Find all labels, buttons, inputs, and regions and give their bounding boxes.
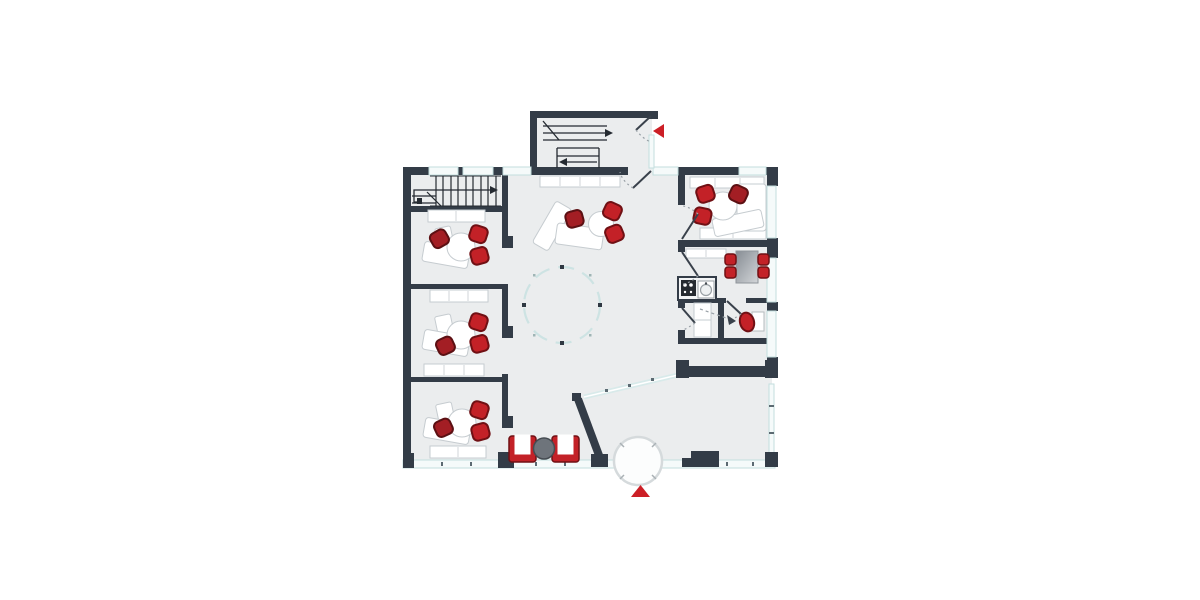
lounge-coffee-table bbox=[534, 438, 555, 459]
breakroom-chair bbox=[725, 267, 736, 278]
breakroom-table bbox=[736, 251, 758, 283]
window-north bbox=[463, 167, 493, 175]
wall-wc-south bbox=[678, 338, 770, 344]
wall-corner-southeast bbox=[765, 452, 778, 467]
window-mullion bbox=[605, 389, 608, 392]
wall-office-divider-1 bbox=[403, 284, 507, 289]
wall-north bbox=[493, 167, 503, 175]
door-frame-office-1 bbox=[502, 236, 513, 248]
sideboard bbox=[424, 364, 484, 376]
door-frame-office-3 bbox=[502, 416, 513, 428]
wall-east bbox=[767, 167, 778, 186]
wall-diagonal-foot bbox=[591, 454, 608, 467]
window-mullion bbox=[651, 378, 654, 381]
stair-start-marker bbox=[417, 198, 422, 204]
stove-burner bbox=[684, 291, 686, 293]
window-north bbox=[503, 167, 531, 175]
dashed-circle-dot bbox=[560, 341, 564, 345]
dashed-circle-tick bbox=[533, 334, 536, 337]
visitor-chair bbox=[469, 246, 490, 266]
entrance-arrow-icon-top bbox=[653, 124, 664, 138]
dashed-circle-dot bbox=[598, 303, 602, 307]
floor-plan bbox=[0, 0, 1200, 600]
window-mullion bbox=[752, 462, 754, 466]
wall-wc-north bbox=[746, 298, 768, 303]
window-mullion bbox=[441, 462, 443, 466]
wall-north bbox=[531, 167, 628, 175]
window-mullion bbox=[535, 462, 537, 466]
window-east bbox=[767, 186, 776, 238]
dashed-circle-dot bbox=[560, 265, 564, 269]
wall-stairwell-north bbox=[530, 111, 658, 118]
entrance-arrow-icon-bottom bbox=[631, 485, 650, 497]
dashed-circle-dot bbox=[522, 303, 526, 307]
window-mullion bbox=[769, 432, 774, 434]
wall-east bbox=[767, 302, 778, 311]
sink-tap bbox=[705, 282, 707, 284]
wall-offices-east bbox=[502, 284, 508, 326]
window-mullion bbox=[726, 462, 728, 466]
lounge-armchair-seat bbox=[558, 435, 574, 455]
wall-diagonal-node bbox=[572, 393, 581, 401]
sink-basin bbox=[701, 285, 712, 296]
dashed-circle-tick bbox=[589, 334, 592, 337]
breakroom-chair bbox=[758, 267, 769, 278]
breakroom-chair bbox=[758, 254, 769, 265]
window-band-south bbox=[403, 460, 775, 468]
wall-right-wing-west bbox=[678, 240, 685, 252]
wall-wc-west bbox=[718, 303, 724, 344]
wall-west bbox=[403, 167, 411, 468]
wall-right-wing-west bbox=[678, 175, 685, 205]
window-band-east-low bbox=[769, 384, 774, 454]
window-north bbox=[653, 167, 678, 175]
stove-burner bbox=[689, 283, 693, 287]
office-chair bbox=[564, 209, 585, 229]
window-mullion bbox=[628, 384, 631, 387]
wc-cabinet bbox=[694, 320, 711, 337]
wall-corner-southwest bbox=[403, 453, 414, 468]
window-north bbox=[739, 167, 766, 175]
window-north bbox=[429, 167, 458, 175]
visitor-chair bbox=[469, 334, 490, 354]
wall-offices-east bbox=[502, 175, 508, 236]
sideboard bbox=[428, 210, 485, 222]
window-east bbox=[767, 311, 776, 357]
wall-right-wing-south bbox=[676, 366, 778, 377]
sideboard bbox=[430, 290, 488, 302]
floor-plan-canvas bbox=[0, 0, 1200, 600]
visitor-chair bbox=[470, 422, 491, 442]
dashed-circle-tick bbox=[533, 274, 536, 277]
wall-stairwell-west bbox=[530, 111, 537, 175]
window-mullion bbox=[769, 405, 774, 407]
stove-burner bbox=[690, 291, 692, 293]
lounge-armchair-seat bbox=[515, 435, 531, 455]
window-vestibule-east bbox=[649, 135, 654, 168]
breakroom-chair bbox=[725, 254, 736, 265]
window-mullion bbox=[470, 462, 472, 466]
wall-office-breakroom bbox=[685, 240, 778, 247]
wall-east bbox=[767, 357, 778, 378]
dashed-circle-tick bbox=[589, 274, 592, 277]
door-frame-office-2 bbox=[502, 326, 513, 338]
wall-office-divider-2 bbox=[403, 377, 507, 382]
